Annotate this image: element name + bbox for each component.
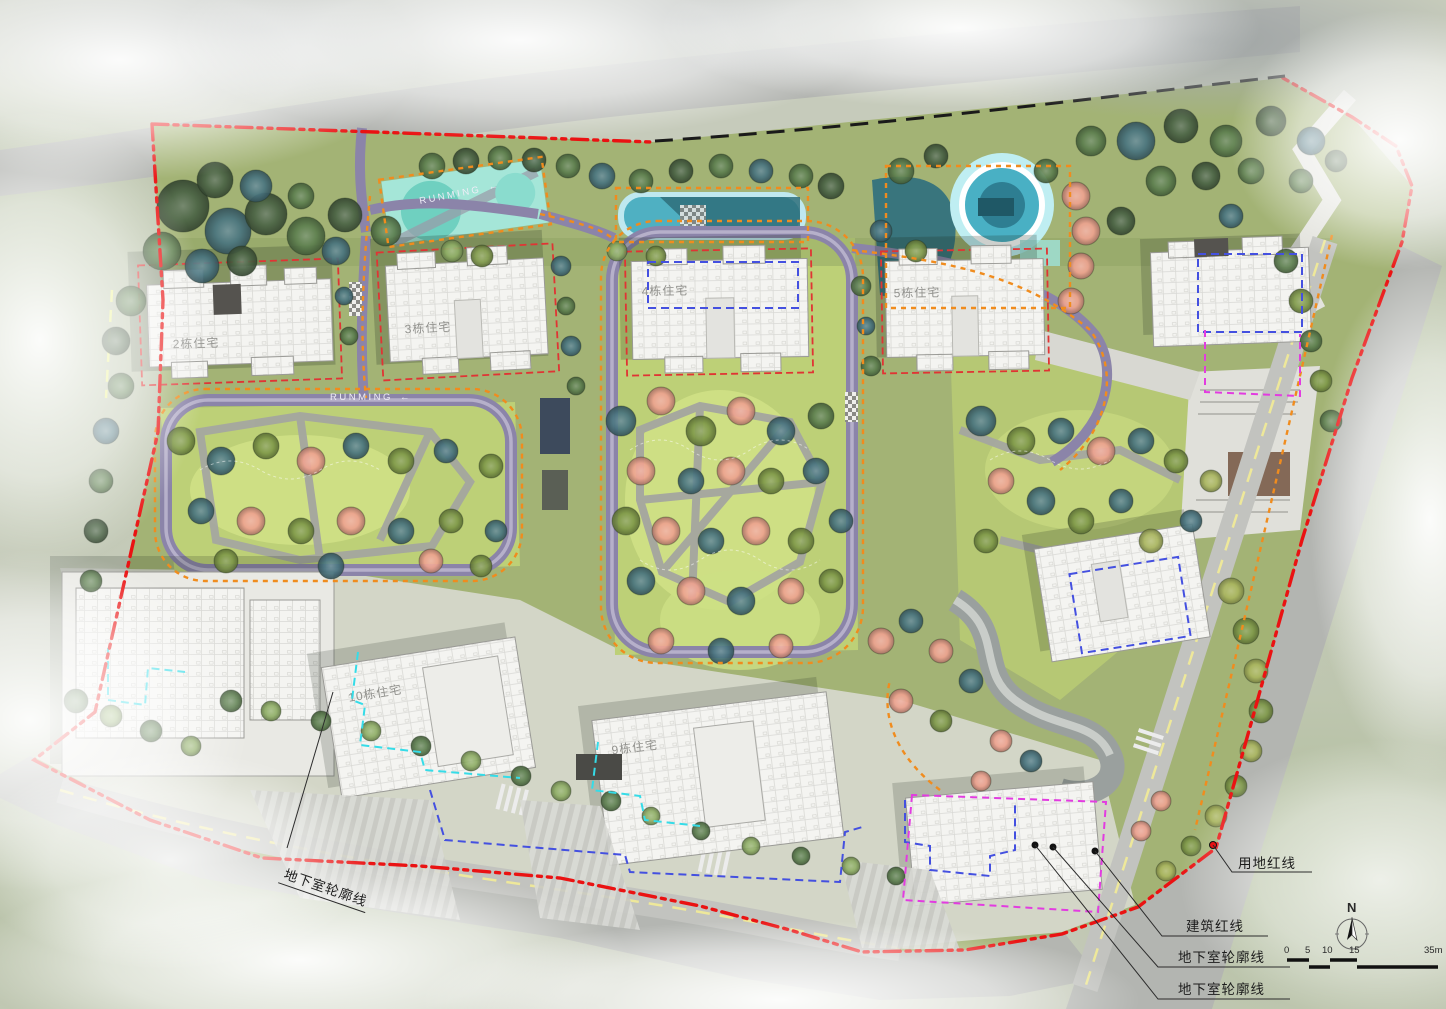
tree	[627, 567, 655, 595]
tree	[335, 287, 353, 305]
tree	[1156, 861, 1176, 881]
tree	[337, 507, 365, 535]
tree	[439, 509, 463, 533]
tree	[551, 781, 571, 801]
tree	[1131, 821, 1151, 841]
tree	[1146, 166, 1176, 196]
tree	[627, 457, 655, 485]
tree	[899, 609, 923, 633]
tree	[567, 377, 585, 395]
tree	[287, 217, 325, 255]
tree	[1076, 126, 1106, 156]
tree	[924, 144, 948, 168]
tree	[1164, 449, 1188, 473]
tree	[888, 158, 914, 184]
tree	[727, 587, 755, 615]
scale-tick-10: 10	[1322, 945, 1333, 956]
tree	[1062, 182, 1090, 210]
tree	[288, 183, 314, 209]
tree	[453, 148, 479, 174]
tree	[419, 153, 445, 179]
tree	[388, 448, 414, 474]
tree	[851, 276, 871, 296]
tree	[647, 387, 675, 415]
tree	[648, 628, 674, 654]
tree	[971, 771, 991, 791]
tree	[485, 520, 507, 542]
tree	[742, 517, 770, 545]
tree	[1072, 217, 1100, 245]
tree	[868, 628, 894, 654]
scale-end-35m: 35m	[1424, 945, 1443, 956]
tree	[788, 528, 814, 554]
tree	[1068, 253, 1094, 279]
tree	[1027, 487, 1055, 515]
tree	[322, 237, 350, 265]
tree	[361, 721, 381, 741]
tree	[727, 397, 755, 425]
tree	[698, 528, 724, 554]
scale-tick-5: 5	[1305, 945, 1310, 956]
tree	[261, 701, 281, 721]
tree	[288, 518, 314, 544]
tree	[601, 791, 621, 811]
tree	[557, 297, 575, 315]
site-plan-svg: 2栋住宅 3栋住宅 4栋住宅	[0, 0, 1446, 1009]
tree	[343, 433, 369, 459]
scale-tick-0: 0	[1284, 945, 1289, 956]
tree	[792, 847, 810, 865]
tree	[340, 327, 358, 345]
tree	[1218, 578, 1244, 604]
tree	[717, 457, 745, 485]
tree	[870, 220, 892, 242]
tree	[889, 689, 913, 713]
tree	[708, 638, 734, 664]
tree	[803, 458, 829, 484]
tree	[556, 154, 580, 178]
tree	[669, 159, 693, 183]
tree	[318, 553, 344, 579]
building-7	[1022, 508, 1210, 663]
tree	[742, 837, 760, 855]
building-3: 3栋住宅	[370, 229, 559, 380]
tree	[652, 517, 680, 545]
tree	[471, 245, 493, 267]
tree	[818, 173, 844, 199]
building-red-line-label: 建筑红线	[1186, 919, 1244, 934]
scale-tick-15: 15	[1349, 945, 1360, 956]
tree	[966, 406, 996, 436]
tree	[411, 736, 431, 756]
tree	[959, 669, 983, 693]
tree	[686, 416, 716, 446]
tree	[612, 507, 640, 535]
tree	[1109, 489, 1133, 513]
building-5: 5栋住宅	[875, 235, 1049, 374]
tree	[887, 867, 905, 885]
tree	[1117, 122, 1155, 160]
tree	[1139, 529, 1163, 553]
tree	[561, 336, 581, 356]
basement-outline-1-label: 地下室轮廓线	[1178, 949, 1265, 965]
tree	[1020, 750, 1042, 772]
tree	[789, 164, 813, 188]
runming-road-arrow-2: ←	[400, 392, 412, 403]
runming-road-label-2: RUNMING	[330, 392, 393, 403]
tree	[214, 549, 238, 573]
runming-road-arrow-1: ←	[487, 180, 501, 193]
tree	[709, 154, 733, 178]
tree	[1200, 470, 1222, 492]
tree	[769, 634, 793, 658]
tree	[819, 569, 843, 593]
tree	[606, 406, 636, 436]
tree	[589, 163, 615, 189]
tree	[990, 730, 1012, 752]
tree	[522, 148, 546, 172]
tree	[929, 639, 953, 663]
tree	[1300, 330, 1322, 352]
tree	[1151, 791, 1171, 811]
building-5-label: 5栋住宅	[894, 284, 941, 300]
tree	[1180, 510, 1202, 532]
tree	[930, 710, 952, 732]
tree	[1240, 740, 1262, 762]
tree	[240, 170, 272, 202]
tree	[778, 578, 804, 604]
tree	[551, 256, 571, 276]
tree	[829, 509, 853, 533]
tree	[511, 766, 531, 786]
tree	[974, 529, 998, 553]
tree	[678, 468, 704, 494]
master-plan-stage: 2栋住宅 3栋住宅 4栋住宅	[0, 0, 1446, 1009]
tree	[607, 241, 627, 261]
tree	[1274, 249, 1298, 273]
tree	[419, 549, 443, 573]
tree	[470, 555, 492, 577]
tree	[677, 577, 705, 605]
utility-block-2	[542, 470, 568, 510]
tree	[1087, 437, 1115, 465]
small-water-court	[540, 398, 570, 454]
tree	[479, 454, 503, 478]
tree	[988, 468, 1014, 494]
tree	[1107, 207, 1135, 235]
tree	[842, 857, 860, 875]
tree	[1233, 618, 1259, 644]
tree	[297, 447, 325, 475]
tree	[1192, 162, 1220, 190]
tree	[188, 498, 214, 524]
tree	[227, 246, 257, 276]
tree	[1068, 508, 1094, 534]
tree	[388, 518, 414, 544]
tree	[328, 198, 362, 232]
tree	[461, 751, 481, 771]
tree	[749, 159, 773, 183]
tree	[1249, 699, 1273, 723]
tree	[1034, 159, 1058, 183]
building-3-label: 3栋住宅	[404, 319, 451, 336]
site-red-line-label: 用地红线	[1238, 856, 1296, 871]
tree	[1128, 428, 1154, 454]
utility-block	[576, 754, 622, 780]
tree	[441, 240, 463, 262]
tree	[434, 439, 458, 463]
tree	[808, 403, 834, 429]
tree	[1219, 204, 1243, 228]
tree	[758, 468, 784, 494]
tree	[629, 169, 653, 193]
tree	[253, 433, 279, 459]
tree	[488, 146, 512, 170]
tree	[1048, 418, 1074, 444]
tree	[311, 711, 331, 731]
basement-outline-2-label: 地下室轮廓线	[1178, 981, 1265, 997]
tree	[857, 317, 875, 335]
north-label: N	[1347, 900, 1356, 915]
tree	[237, 507, 265, 535]
